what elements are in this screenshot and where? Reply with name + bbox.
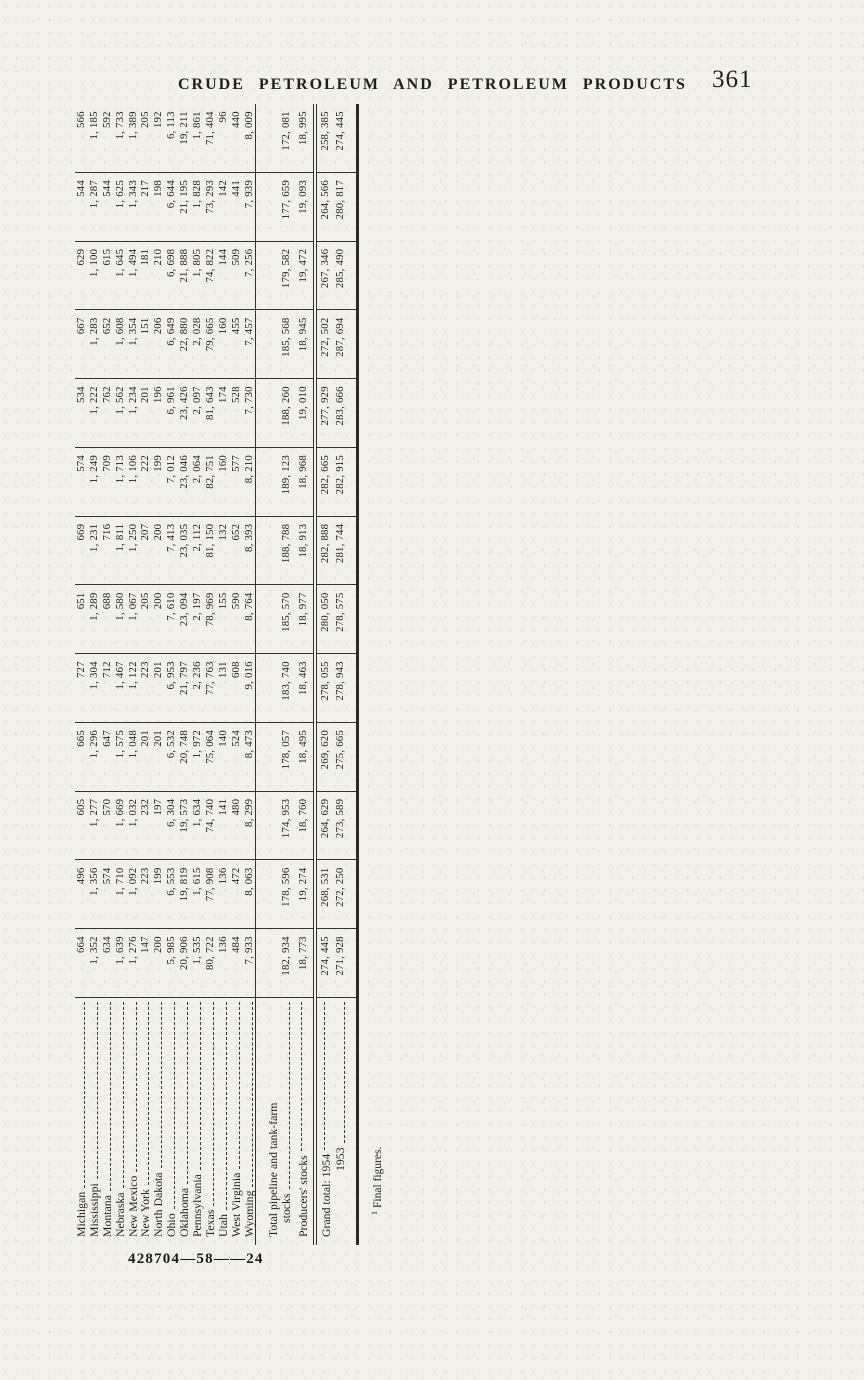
table-cell: 1, 287	[88, 173, 101, 242]
table-cell: 80, 722	[204, 929, 217, 998]
signature-mark: 428704—58——24	[128, 1251, 264, 1268]
table-cell: 1, 106	[127, 448, 140, 517]
table-cell: 1, 352	[88, 929, 101, 998]
table-cell: 6, 698	[165, 242, 178, 311]
table-cell: 544	[75, 173, 88, 242]
table-cell: 172, 081	[280, 104, 293, 173]
row-label: Grand total: 1954	[317, 998, 334, 1245]
table-cell: 155	[217, 586, 230, 655]
dotted-leader	[148, 1002, 149, 1185]
row-label: Michigan	[75, 998, 88, 1245]
table-cell: 1, 634	[191, 792, 204, 861]
grand-total-section: Grand total: 1954274, 445268, 531264, 62…	[313, 104, 359, 1245]
row-label: Pennsylvania	[191, 998, 204, 1245]
table-cell: 8, 063	[243, 861, 256, 930]
row-label-text: Producers' stocks	[297, 1155, 310, 1237]
table-cell: 1, 283	[88, 311, 101, 380]
table-cell: 205	[139, 104, 152, 173]
table-cell: 197	[152, 792, 165, 861]
table-row-new-york: New York14722323220122320520722220115118…	[139, 104, 152, 1245]
table-cell: 77, 908	[204, 861, 217, 930]
table-cell: 1, 805	[191, 242, 204, 311]
table-cell: 9, 016	[243, 654, 256, 723]
dotted-leader	[187, 1002, 188, 1184]
table-cell: 1, 828	[191, 173, 204, 242]
table-cell: 77, 763	[204, 654, 217, 723]
row-label-text: Michigan	[75, 1192, 88, 1237]
table-cell: 1, 354	[127, 311, 140, 380]
table-cell: 81, 150	[204, 517, 217, 586]
table-cell: 272, 502	[317, 311, 334, 380]
table-cell: 1, 811	[114, 517, 127, 586]
table-cell: 273, 589	[334, 792, 356, 861]
row-label: Nebraska	[114, 998, 127, 1245]
table-cell: 1, 562	[114, 379, 127, 448]
table-cell: 2, 197	[191, 586, 204, 655]
table-cell	[256, 242, 280, 311]
table-cell: 496	[75, 861, 88, 930]
table-cell: 2, 028	[191, 311, 204, 380]
table-row-pennsylvania: Pennsylvania1, 5351, 6151, 6341, 9722, 2…	[191, 104, 204, 1245]
table-cell: 196	[152, 379, 165, 448]
table-row-grand-total-1954: Grand total: 1954274, 445268, 531264, 62…	[317, 104, 334, 1245]
footnote-text: Final figures.	[372, 1147, 384, 1208]
page-title: CRUDE PETROLEUM AND PETROLEUM PRODUCTS	[178, 76, 687, 94]
row-label: Montana	[101, 998, 114, 1245]
row-label: Total pipeline and tank-farm	[256, 998, 280, 1245]
row-label-text: 1953	[334, 1147, 347, 1171]
table-cell: 23, 426	[178, 379, 191, 448]
table-cell: 8, 764	[243, 586, 256, 655]
table-cell	[256, 517, 280, 586]
table-cell: 200	[152, 929, 165, 998]
table-cell: 136	[217, 929, 230, 998]
row-label-text: Texas	[204, 1210, 217, 1237]
table-cell: 1, 861	[191, 104, 204, 173]
table-cell: 8, 009	[243, 104, 256, 173]
table-cell: 712	[101, 654, 114, 723]
table-cell: 258, 385	[317, 104, 334, 173]
table-cell: 570	[101, 792, 114, 861]
table-cell: 201	[139, 379, 152, 448]
table-cell: 6, 649	[165, 311, 178, 380]
table-cell: 272, 250	[334, 861, 356, 930]
table-cell: 144	[217, 242, 230, 311]
row-label: Utah	[217, 998, 230, 1245]
table-cell: 132	[217, 517, 230, 586]
table-cell: 141	[217, 792, 230, 861]
table-cell: 282, 665	[317, 448, 334, 517]
table-row-oklahoma: Oklahoma20, 90619, 81919, 57320, 74821, …	[178, 104, 191, 1245]
table-cell: 201	[139, 723, 152, 792]
table-cell: 6, 553	[165, 861, 178, 930]
petroleum-stocks-table: Michigan66449660566572765166957453466762…	[75, 104, 359, 1245]
table-cell: 615	[101, 242, 114, 311]
table-cell: 6, 113	[165, 104, 178, 173]
table-cell: 21, 195	[178, 173, 191, 242]
table-cell	[256, 654, 280, 723]
table-cell: 590	[230, 586, 243, 655]
table-cell: 574	[75, 448, 88, 517]
table-cell: 7, 012	[165, 448, 178, 517]
table-cell: 629	[75, 242, 88, 311]
table-cell: 178, 057	[280, 723, 293, 792]
table-cell: 73, 293	[204, 173, 217, 242]
table-cell: 174, 953	[280, 792, 293, 861]
table-cell: 278, 055	[317, 654, 334, 723]
table-cell: 131	[217, 654, 230, 723]
table-row-utah: Utah136136141140131155132160174160144142…	[217, 104, 230, 1245]
table-cell: 223	[139, 654, 152, 723]
table-cell: 7, 933	[243, 929, 256, 998]
table-cell: 665	[75, 723, 88, 792]
dotted-leader	[226, 1002, 227, 1210]
table-cell: 140	[217, 723, 230, 792]
table-cell: 1, 494	[127, 242, 140, 311]
table-cell: 1, 580	[114, 586, 127, 655]
table-cell: 592	[101, 104, 114, 173]
row-label: North Dakota	[152, 998, 165, 1245]
table-cell: 18, 945	[293, 311, 313, 380]
table-cell: 18, 463	[293, 654, 313, 723]
table-cell: 181	[139, 242, 152, 311]
dotted-leader	[123, 1002, 124, 1188]
table-cell	[256, 861, 280, 930]
table-row-new-mexico: New Mexico1, 2761, 0921, 0321, 0481, 122…	[127, 104, 140, 1245]
table-cell: 282, 888	[317, 517, 334, 586]
table-cell: 78, 969	[204, 586, 217, 655]
table-cell: 7, 413	[165, 517, 178, 586]
table-cell: 268, 531	[317, 861, 334, 930]
table-cell	[256, 586, 280, 655]
table-cell: 199	[152, 861, 165, 930]
dotted-leader	[344, 1002, 345, 1143]
table-cell: 20, 748	[178, 723, 191, 792]
dotted-leader	[161, 1002, 162, 1168]
table-cell: 1, 185	[88, 104, 101, 173]
row-label-text: Pennsylvania	[191, 1174, 204, 1237]
table-cell: 1, 615	[191, 861, 204, 930]
row-label: 1953	[334, 998, 356, 1245]
dotted-leader	[110, 1002, 111, 1191]
table-cell: 174	[217, 379, 230, 448]
footnote: 1Final figures.	[370, 1147, 384, 1215]
table-cell: 709	[101, 448, 114, 517]
table-row-north-dakota: North Dakota2001991972012012002001991962…	[152, 104, 165, 1245]
table-cell: 222	[139, 448, 152, 517]
table-cell: 19, 819	[178, 861, 191, 930]
table-cell: 441	[230, 173, 243, 242]
table-row-west-virginia: West Virginia484472480524608590652577528…	[230, 104, 243, 1245]
table-cell	[256, 173, 280, 242]
table-cell: 177, 659	[280, 173, 293, 242]
table-cell: 2, 236	[191, 654, 204, 723]
dotted-leader	[174, 1002, 175, 1209]
table-cell: 21, 797	[178, 654, 191, 723]
page-number: 361	[712, 66, 753, 94]
table-cell: 82, 751	[204, 448, 217, 517]
table-cell: 6, 953	[165, 654, 178, 723]
row-label-text: Wyoming	[243, 1191, 256, 1237]
table-cell: 1, 250	[127, 517, 140, 586]
footnote-marker: 1	[370, 1211, 379, 1215]
table-cell: 217	[139, 173, 152, 242]
table-cell: 264, 629	[317, 792, 334, 861]
table-cell: 2, 112	[191, 517, 204, 586]
table-cell: 1, 222	[88, 379, 101, 448]
dotted-leader	[301, 1002, 302, 1151]
table-cell: 207	[139, 517, 152, 586]
table-cell: 651	[75, 586, 88, 655]
table-cell: 574	[101, 861, 114, 930]
row-label: Texas	[204, 998, 217, 1245]
table-cell: 285, 490	[334, 242, 356, 311]
table-cell: 189, 123	[280, 448, 293, 517]
table-cell	[256, 723, 280, 792]
table-cell	[256, 929, 280, 998]
table-cell: 1, 249	[88, 448, 101, 517]
table-cell: 1, 389	[127, 104, 140, 173]
table-cell: 223	[139, 861, 152, 930]
table-cell: 1, 122	[127, 654, 140, 723]
table-cell: 1, 467	[114, 654, 127, 723]
row-label-text: West Virginia	[230, 1173, 243, 1237]
table-cell: 23, 035	[178, 517, 191, 586]
table-cell: 1, 296	[88, 723, 101, 792]
table-cell: 18, 760	[293, 792, 313, 861]
table-cell: 199	[152, 448, 165, 517]
table-cell: 1, 277	[88, 792, 101, 861]
table-cell: 762	[101, 379, 114, 448]
table-cell: 200	[152, 586, 165, 655]
table-cell: 1, 608	[114, 311, 127, 380]
table-cell: 188, 260	[280, 379, 293, 448]
table-cell: 96	[217, 104, 230, 173]
table-cell: 7, 457	[243, 311, 256, 380]
table-cell: 8, 473	[243, 723, 256, 792]
row-label: Mississippi	[88, 998, 101, 1245]
table-cell: 472	[230, 861, 243, 930]
table-cell	[256, 379, 280, 448]
table-cell: 1, 343	[127, 173, 140, 242]
table-cell: 664	[75, 929, 88, 998]
table-cell: 18, 773	[293, 929, 313, 998]
table-cell: 7, 939	[243, 173, 256, 242]
table-cell: 6, 961	[165, 379, 178, 448]
table-cell: 608	[230, 654, 243, 723]
table-cell: 1, 639	[114, 929, 127, 998]
table-cell: 6, 304	[165, 792, 178, 861]
table-cell: 1, 669	[114, 792, 127, 861]
table-cell: 1, 625	[114, 173, 127, 242]
table-row-texas: Texas80, 72277, 90874, 74075, 06477, 763…	[204, 104, 217, 1245]
table-cell: 151	[139, 311, 152, 380]
table-cell: 1, 067	[127, 586, 140, 655]
table-cell: 200	[152, 517, 165, 586]
table-cell: 716	[101, 517, 114, 586]
table-cell: 160	[217, 448, 230, 517]
table-cell: 1, 234	[127, 379, 140, 448]
table-cell	[256, 448, 280, 517]
table-cell: 269, 620	[317, 723, 334, 792]
table-cell: 271, 928	[334, 929, 356, 998]
table-cell: 178, 596	[280, 861, 293, 930]
table-cell: 2, 097	[191, 379, 204, 448]
table-cell: 142	[217, 173, 230, 242]
table-cell: 8, 210	[243, 448, 256, 517]
table-row-producers-stocks: Producers' stocks18, 77319, 27418, 76018…	[293, 104, 313, 1245]
dotted-leader	[239, 1002, 240, 1169]
table-cell: 652	[101, 311, 114, 380]
dotted-leader	[136, 1002, 137, 1172]
table-cell: 160	[217, 311, 230, 380]
table-cell: 18, 968	[293, 448, 313, 517]
table-cell: 278, 575	[334, 586, 356, 655]
table-cell: 19, 093	[293, 173, 313, 242]
table-cell: 1, 733	[114, 104, 127, 173]
dotted-leader	[324, 1002, 325, 1150]
table-cell: 18, 495	[293, 723, 313, 792]
table-cell: 74, 822	[204, 242, 217, 311]
table-cell: 201	[152, 654, 165, 723]
table-cell: 1, 356	[88, 861, 101, 930]
table-cell: 274, 445	[317, 929, 334, 998]
table-cell: 201	[152, 723, 165, 792]
dotted-leader	[289, 1002, 290, 1190]
landscape-canvas: Michigan66449660566572765166957453466762…	[62, 103, 408, 1245]
table-cell	[256, 792, 280, 861]
table-cell: 6, 644	[165, 173, 178, 242]
table-cell: 192	[152, 104, 165, 173]
table-cell: 75, 064	[204, 723, 217, 792]
table-cell: 2, 064	[191, 448, 204, 517]
table-cell: 198	[152, 173, 165, 242]
table-cell: 1, 304	[88, 654, 101, 723]
table-row-michigan: Michigan66449660566572765166957453466762…	[75, 104, 88, 1245]
table-cell: 1, 972	[191, 723, 204, 792]
table-cell: 577	[230, 448, 243, 517]
row-label-text: Mississippi	[88, 1183, 101, 1237]
table-cell: 5, 985	[165, 929, 178, 998]
table-cell: 7, 610	[165, 586, 178, 655]
table-cell: 455	[230, 311, 243, 380]
row-label-text: stocks	[280, 1194, 293, 1224]
table-cell: 19, 010	[293, 379, 313, 448]
table-cell: 18, 913	[293, 517, 313, 586]
table-cell: 264, 566	[317, 173, 334, 242]
row-label: Producers' stocks	[293, 998, 313, 1245]
table-cell: 509	[230, 242, 243, 311]
dotted-leader	[97, 1002, 98, 1179]
table-cell: 19, 573	[178, 792, 191, 861]
table-cell: 7, 730	[243, 379, 256, 448]
table-cell: 19, 274	[293, 861, 313, 930]
table-cell: 19, 472	[293, 242, 313, 311]
table-cell: 21, 888	[178, 242, 191, 311]
table-cell: 147	[139, 929, 152, 998]
row-label-text: Total pipeline and tank-farm	[267, 1103, 280, 1237]
row-label-text: Nebraska	[114, 1192, 127, 1237]
table-cell: 267, 346	[317, 242, 334, 311]
table-cell: 1, 276	[127, 929, 140, 998]
table-cell: 669	[75, 517, 88, 586]
table-row-montana: Montana634574570647712688716709762652615…	[101, 104, 114, 1245]
table-row-grand-total-1953: 1953271, 928272, 250273, 589275, 665278,…	[334, 104, 356, 1245]
table-cell: 19, 211	[178, 104, 191, 173]
table-cell: 210	[152, 242, 165, 311]
table-cell: 136	[217, 861, 230, 930]
scanned-page: CRUDE PETROLEUM AND PETROLEUM PRODUCTS 3…	[0, 0, 864, 1380]
table-cell: 277, 929	[317, 379, 334, 448]
table-cell: 182, 934	[280, 929, 293, 998]
table-cell: 280, 817	[334, 173, 356, 242]
table-cell: 440	[230, 104, 243, 173]
table-row-total-pipeline-line2: stocks182, 934178, 596174, 953178, 05718…	[280, 104, 293, 1245]
table-cell: 22, 880	[178, 311, 191, 380]
table-cell: 634	[101, 929, 114, 998]
table-cell: 8, 393	[243, 517, 256, 586]
table-cell: 1, 575	[114, 723, 127, 792]
table-cell: 18, 995	[293, 104, 313, 173]
table-cell: 74, 740	[204, 792, 217, 861]
table-cell: 188, 788	[280, 517, 293, 586]
table-cell	[256, 311, 280, 380]
row-label-text: Montana	[101, 1195, 114, 1237]
table-cell: 667	[75, 311, 88, 380]
table-cell: 280, 050	[317, 586, 334, 655]
table-cell: 287, 694	[334, 311, 356, 380]
table-cell: 1, 713	[114, 448, 127, 517]
table-cell: 71, 404	[204, 104, 217, 173]
row-label: stocks	[280, 998, 293, 1245]
table-cell: 183, 740	[280, 654, 293, 723]
table-cell: 278, 943	[334, 654, 356, 723]
table-row-nebraska: Nebraska1, 6391, 7101, 6691, 5751, 4671,…	[114, 104, 127, 1245]
table-cell: 81, 643	[204, 379, 217, 448]
table-cell: 274, 445	[334, 104, 356, 173]
table-row-wyoming: Wyoming7, 9338, 0638, 2998, 4739, 0168, …	[243, 104, 256, 1245]
table-cell: 528	[230, 379, 243, 448]
table-cell: 1, 535	[191, 929, 204, 998]
table-cell: 185, 568	[280, 311, 293, 380]
table-cell: 1, 048	[127, 723, 140, 792]
table-cell: 275, 665	[334, 723, 356, 792]
table-cell: 205	[139, 586, 152, 655]
table-cell: 18, 977	[293, 586, 313, 655]
table-row-mississippi: Mississippi1, 3521, 3561, 2771, 2961, 30…	[88, 104, 101, 1245]
table-cell: 1, 289	[88, 586, 101, 655]
table-cell: 544	[101, 173, 114, 242]
table-cell: 79, 665	[204, 311, 217, 380]
table-cell: 1, 710	[114, 861, 127, 930]
rotated-table-region: Michigan66449660566572765166957453466762…	[62, 103, 408, 1245]
table-cell: 1, 645	[114, 242, 127, 311]
table-row-total-pipeline-line1: Total pipeline and tank-farm	[256, 104, 280, 1245]
table-cell: 20, 906	[178, 929, 191, 998]
table-cell: 282, 915	[334, 448, 356, 517]
dotted-leader	[200, 1002, 201, 1170]
row-label-text: Utah	[217, 1214, 230, 1237]
table-cell: 185, 570	[280, 586, 293, 655]
table-cell: 283, 666	[334, 379, 356, 448]
table-cell	[256, 104, 280, 173]
table-cell: 7, 256	[243, 242, 256, 311]
table-cell: 652	[230, 517, 243, 586]
table-cell: 1, 100	[88, 242, 101, 311]
dotted-leader	[84, 1002, 85, 1188]
table-cell: 1, 231	[88, 517, 101, 586]
table-cell: 688	[101, 586, 114, 655]
